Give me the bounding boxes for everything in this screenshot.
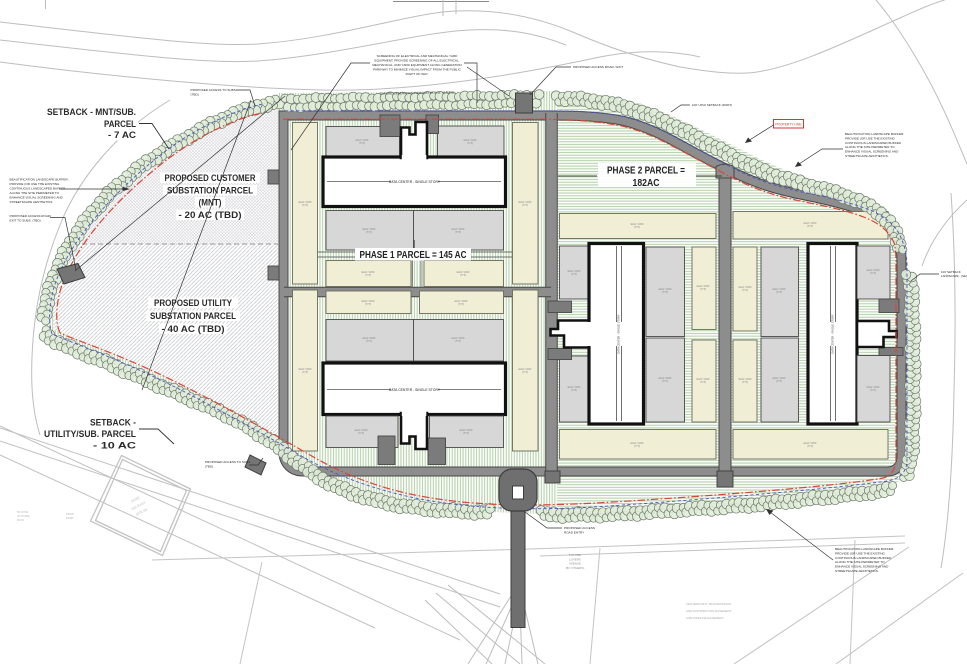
svg-text:ELEC YARD: ELEC YARD <box>452 228 465 231</box>
svg-text:SCREENING OF ELECTRICAL AND ME: SCREENING OF ELECTRICAL AND MECHANICAL Y… <box>377 54 459 58</box>
svg-text:ELEC YARD: ELEC YARD <box>460 429 473 432</box>
svg-text:(TYP): (TYP) <box>467 143 473 145</box>
svg-text:ELEC YARD: ELEC YARD <box>773 288 786 291</box>
svg-text:ELEC YARD: ELEC YARD <box>739 286 752 289</box>
svg-text:ELEC YARD: ELEC YARD <box>867 386 880 389</box>
svg-text:(TYP): (TYP) <box>365 304 371 306</box>
svg-text:- 40 AC (TBD): - 40 AC (TBD) <box>162 324 225 334</box>
svg-text:ELEC YARD: ELEC YARD <box>452 337 465 340</box>
svg-text:ENHANCE VISUAL SCREENING AND: ENHANCE VISUAL SCREENING AND <box>835 565 889 569</box>
svg-text:(TYP): (TYP) <box>455 232 461 234</box>
svg-text:- 10 AC: - 10 AC <box>93 441 136 451</box>
svg-text:EQUIPMENT: PROVIDE SCREENING O: EQUIPMENT: PROVIDE SCREENING OF ALL ELEC… <box>375 59 460 63</box>
svg-text:ELEC YARD: ELEC YARD <box>739 378 752 381</box>
svg-text:(TYP): (TYP) <box>742 382 748 384</box>
svg-text:DATA CENTER - SINGLE STORY: DATA CENTER - SINGLE STORY <box>389 388 441 392</box>
svg-text:- 20 AC (TBD): - 20 AC (TBD) <box>179 210 242 220</box>
svg-text:(MNT): (MNT) <box>199 198 222 208</box>
svg-text:CONTINUOUS LANDSCAPED BUFFER: CONTINUOUS LANDSCAPED BUFFER <box>10 187 67 191</box>
svg-text:ELEC YARD: ELEC YARD <box>362 271 375 274</box>
svg-text:DATA CENTER - SINGLE STORY: DATA CENTER - SINGLE STORY <box>389 180 441 184</box>
svg-text:ELEC YARD: ELEC YARD <box>457 271 470 274</box>
svg-text:(TYP): (TYP) <box>807 226 813 228</box>
svg-text:PROPOSED ACCESS TO SUBS.: PROPOSED ACCESS TO SUBS. <box>191 88 237 92</box>
svg-text:STREETSCAPE AESTHETICS.: STREETSCAPE AESTHETICS. <box>10 200 54 204</box>
svg-text:ELEC YARD: ELEC YARD <box>568 270 581 273</box>
svg-text:DATA CENTER - SINGLE STORY: DATA CENTER - SINGLE STORY <box>831 314 835 353</box>
svg-text:(TYP): (TYP) <box>522 205 528 207</box>
svg-text:SUBSTATION PARCEL: SUBSTATION PARCEL <box>167 186 253 196</box>
svg-text:(TYP): (TYP) <box>458 304 464 306</box>
svg-text:ELEC YARD: ELEC YARD <box>299 368 312 371</box>
svg-text:SETBACK - MNT/SUB.: SETBACK - MNT/SUB. <box>47 107 136 117</box>
svg-text:MECHANICAL, AND YARD EQUIPMENT: MECHANICAL, AND YARD EQUIPMENT ALONG GEN… <box>372 63 461 67</box>
svg-text:PARKWAY TO MINIMIZE VISUAL IMP: PARKWAY TO MINIMIZE VISUAL IMPACT FROM T… <box>373 68 461 72</box>
svg-text:LANDSCAPE - (SE): LANDSCAPE - (SE) <box>941 274 967 278</box>
svg-text:AND DISTRIBUTION EASEMENT: AND DISTRIBUTION EASEMENT <box>686 609 732 613</box>
svg-text:BEAUTIFICATION LANDSCAPE BUFFE: BEAUTIFICATION LANDSCAPE BUFFER: <box>845 132 904 136</box>
svg-text:ELEC YARD: ELEC YARD <box>356 139 369 142</box>
svg-text:ELEC YARD: ELEC YARD <box>519 368 532 371</box>
svg-text:(TYP): (TYP) <box>634 446 640 448</box>
svg-text:ELEC YARD: ELEC YARD <box>455 300 468 303</box>
svg-text:ELEC YARD: ELEC YARD <box>659 377 672 380</box>
svg-text:RIGHT OF WAY.: RIGHT OF WAY. <box>406 72 429 76</box>
svg-text:ENHANCE VISUAL SCREENING AND: ENHANCE VISUAL SCREENING AND <box>10 196 64 200</box>
svg-text:ELEC YARD: ELEC YARD <box>519 201 532 204</box>
svg-text:BLVD: BLVD <box>17 518 24 522</box>
svg-text:SUBSTATION PARCEL: SUBSTATION PARCEL <box>150 311 236 321</box>
svg-text:PROPOSED ACCESS ROAD / EXIT: PROPOSED ACCESS ROAD / EXIT <box>573 65 623 69</box>
svg-text:(TYP): (TYP) <box>700 289 706 291</box>
svg-text:(TYP): (TYP) <box>870 273 876 275</box>
svg-text:(TYP): (TYP) <box>365 275 371 277</box>
svg-text:ALONG THE SITE PERIMETER TO: ALONG THE SITE PERIMETER TO <box>845 145 895 149</box>
svg-text:UTILITY/SUB. PARCEL: UTILITY/SUB. PARCEL <box>44 429 136 439</box>
svg-text:EXIT TO SUBS. (TBD): EXIT TO SUBS. (TBD) <box>10 219 41 223</box>
svg-text:STREETSCAPE AESTHETICS.: STREETSCAPE AESTHETICS. <box>845 154 889 158</box>
svg-text:ALONG THE SITE PERIMETER TO: ALONG THE SITE PERIMETER TO <box>10 191 60 195</box>
svg-text:ELEC YARD: ELEC YARD <box>363 337 376 340</box>
svg-text:ALONG THE SITE PERIMETER TO: ALONG THE SITE PERIMETER TO <box>835 560 885 564</box>
svg-text:ELEC YARD: ELEC YARD <box>697 378 710 381</box>
svg-text:(TYP): (TYP) <box>776 381 782 383</box>
svg-text:SETBACK -: SETBACK - <box>90 418 136 428</box>
svg-text:ELEC YARD: ELEC YARD <box>568 386 581 389</box>
svg-text:(TYP): (TYP) <box>358 433 364 435</box>
svg-text:(TYP): (TYP) <box>455 341 461 343</box>
svg-text:PROPOSED ACCESS: PROPOSED ACCESS <box>564 526 595 530</box>
svg-text:PHASE 2 PARCEL =: PHASE 2 PARCEL = <box>607 165 685 177</box>
svg-text:ELEC YARD: ELEC YARD <box>631 442 644 445</box>
svg-text:ELEC YARD: ELEC YARD <box>867 269 880 272</box>
svg-text:(TYP): (TYP) <box>366 341 372 343</box>
svg-text:(BY OTHERS): (BY OTHERS) <box>566 566 585 570</box>
svg-text:(TYP): (TYP) <box>463 433 469 435</box>
svg-text:(TYP): (TYP) <box>571 274 577 276</box>
svg-text:PROPOSED ACCESS TO SUBS.: PROPOSED ACCESS TO SUBS. <box>205 460 251 464</box>
svg-text:ELEC YARD: ELEC YARD <box>363 228 376 231</box>
svg-text:PARCEL: PARCEL <box>104 119 136 129</box>
svg-text:ELEC YARD: ELEC YARD <box>697 285 710 288</box>
svg-text:ENHANCE VISUAL SCREENING AND: ENHANCE VISUAL SCREENING AND <box>845 150 899 154</box>
svg-text:ESMT: ESMT <box>66 516 74 520</box>
svg-text:ELEC YARD: ELEC YARD <box>773 377 786 380</box>
svg-text:(TYP): (TYP) <box>870 390 876 392</box>
svg-text:ELEC YARD: ELEC YARD <box>355 429 368 432</box>
svg-text:PROPERTY LINE: PROPERTY LINE <box>775 123 802 127</box>
svg-text:ELEC YARD: ELEC YARD <box>362 300 375 303</box>
svg-text:CONTINUOUS LANDSCAPED BUFFER: CONTINUOUS LANDSCAPED BUFFER <box>845 141 902 145</box>
svg-text:AND PIPELINE EASEMENT: AND PIPELINE EASEMENT <box>686 616 724 620</box>
svg-text:(TYP): (TYP) <box>359 143 365 145</box>
svg-text:(TYP): (TYP) <box>634 227 640 229</box>
svg-text:ROAD ENTRY: ROAD ENTRY <box>564 531 584 535</box>
svg-text:PROVIDE (OR USE THE EXISTING: PROVIDE (OR USE THE EXISTING <box>845 136 896 140</box>
svg-text:182AC: 182AC <box>633 177 660 189</box>
svg-text:ELEC YARD: ELEC YARD <box>804 222 817 225</box>
svg-text:BEAUTIFICATION LANDSCAPE BUFFE: BEAUTIFICATION LANDSCAPE BUFFER: <box>835 547 894 551</box>
svg-text:ELEC YARD: ELEC YARD <box>659 288 672 291</box>
svg-text:(TYP): (TYP) <box>571 390 577 392</box>
svg-text:(TBD): (TBD) <box>191 92 199 96</box>
svg-text:ELEC YARD: ELEC YARD <box>631 223 644 226</box>
svg-text:(TYP): (TYP) <box>742 290 748 292</box>
svg-text:(TYP): (TYP) <box>776 292 782 294</box>
svg-text:CONTINUOUS LANDSCAPED BUFFER: CONTINUOUS LANDSCAPED BUFFER <box>835 556 892 560</box>
svg-text:(TYP): (TYP) <box>807 446 813 448</box>
svg-text:- 7 AC: - 7 AC <box>108 130 136 140</box>
svg-text:(TYP): (TYP) <box>302 205 308 207</box>
svg-text:BEAUTIFICATION LANDSCAPE BUFFE: BEAUTIFICATION LANDSCAPE BUFFER: <box>10 178 69 182</box>
svg-text:STREETSCAPE AESTHETICS.: STREETSCAPE AESTHETICS. <box>835 569 879 573</box>
svg-text:PROPOSED UTILITY: PROPOSED UTILITY <box>154 298 233 308</box>
svg-text:(TYP): (TYP) <box>662 292 668 294</box>
svg-text:ELEC YARD: ELEC YARD <box>804 442 817 445</box>
svg-text:100' UPL6 SETBACK (300FT): 100' UPL6 SETBACK (300FT) <box>692 103 732 107</box>
svg-text:CENTERPOINT TRANSMISSION: CENTERPOINT TRANSMISSION <box>686 602 731 606</box>
svg-text:PROPOSED ACCESS ROAD/: PROPOSED ACCESS ROAD/ <box>10 214 52 218</box>
svg-text:(TBD): (TBD) <box>205 464 213 468</box>
svg-text:DATA CENTER - SINGLE STORY: DATA CENTER - SINGLE STORY <box>617 314 621 353</box>
svg-text:ELEC YARD: ELEC YARD <box>464 139 477 142</box>
svg-text:(TYP): (TYP) <box>366 232 372 234</box>
svg-text:(TYP): (TYP) <box>460 275 466 277</box>
svg-text:PROPOSED CUSTOMER: PROPOSED CUSTOMER <box>165 173 256 183</box>
svg-text:(TYP): (TYP) <box>700 382 706 384</box>
svg-text:PROVIDE (OR USE THE EXISTING: PROVIDE (OR USE THE EXISTING <box>835 551 886 555</box>
svg-text:(TYP): (TYP) <box>522 372 528 374</box>
svg-text:(TYP): (TYP) <box>302 372 308 374</box>
svg-text:ELEC YARD: ELEC YARD <box>299 201 312 204</box>
svg-text:PROVIDE (OR USE THE EXISTING: PROVIDE (OR USE THE EXISTING <box>10 182 61 186</box>
svg-text:(TYP): (TYP) <box>662 381 668 383</box>
svg-text:PHASE 1 PARCEL = 145 AC: PHASE 1 PARCEL = 145 AC <box>360 249 467 261</box>
